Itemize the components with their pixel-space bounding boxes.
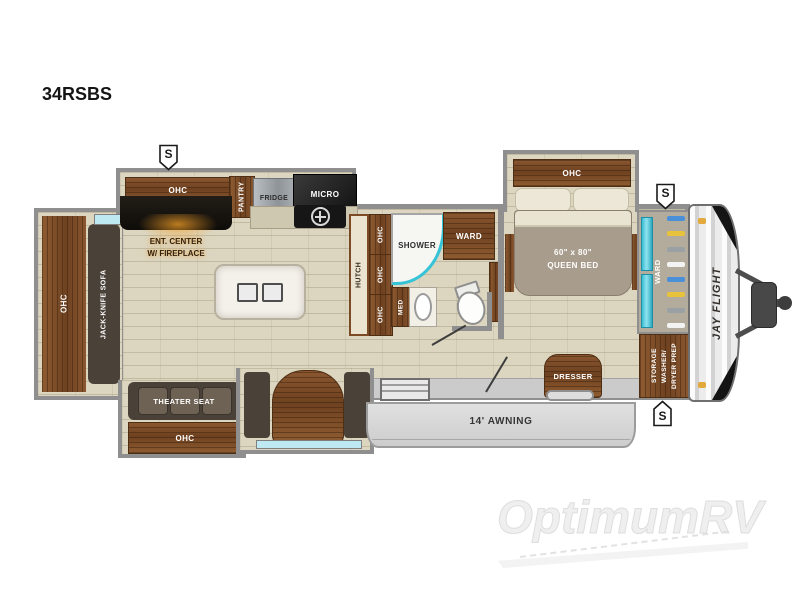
hitch-ball [778, 296, 792, 310]
theater-seat: THEATER SEAT [128, 382, 240, 420]
storage-washer-dryer-prep: STORAGE WASHER/ DRYER PREP [639, 334, 689, 398]
clothes-icon [667, 247, 685, 252]
ohc-label-1: OHC [370, 215, 392, 255]
dinette-table [272, 370, 344, 444]
front-ward-label: WARD [653, 212, 662, 332]
ohc-label-2: OHC [370, 255, 392, 295]
awning-label: 14' AWNING [368, 404, 634, 438]
propane-cover [751, 282, 777, 328]
bedroom-slideout: OHC [503, 150, 639, 212]
awning: 14' AWNING [366, 402, 636, 448]
awning-roller-line [372, 439, 630, 440]
marker-light-top [698, 218, 706, 224]
ohc-label-3: OHC [370, 295, 392, 335]
theater-seat-label: THEATER SEAT [128, 382, 240, 420]
clothes-icon [667, 323, 685, 328]
clothes-icon [667, 277, 685, 282]
queen-bed: 60" x 80" QUEEN BED [514, 210, 632, 296]
dinette-window [256, 440, 362, 449]
storage-label-1: STORAGE [651, 335, 658, 397]
sink-basin-left [237, 283, 258, 302]
theater-ohc-cabinet: OHC [128, 422, 242, 454]
brand-logo: JAY FLIGHT [706, 206, 728, 400]
dinette-bench-left [244, 372, 270, 438]
clothes-icon [667, 231, 685, 236]
clothes-icon [667, 292, 685, 297]
marker-light-bottom [698, 382, 706, 388]
speaker-badge-letter: S [658, 409, 666, 423]
clothes-icon [667, 216, 685, 221]
bath-wardrobe: WARD [443, 212, 495, 260]
cooktop [294, 205, 346, 228]
floorplan-image: 34RSBS OHC JACK-KNIFE SOFA OHC PANTRY FR… [0, 0, 800, 600]
bed-ohc-label: OHC [514, 160, 630, 186]
bed-ohc-cabinet: OHC [513, 159, 631, 187]
rear-ohc-label: OHC [42, 216, 86, 392]
nightstand-left [505, 234, 514, 292]
entry-step [380, 378, 430, 401]
queen-bed-name: QUEEN BED [547, 261, 598, 270]
speaker-badge-bedroom: S [655, 183, 676, 210]
hutch: HUTCH [349, 214, 369, 336]
clothes-icon [667, 308, 685, 313]
shower-label: SHOWER [394, 241, 440, 250]
door-threshold [546, 390, 594, 401]
bath-wall-vertical [487, 292, 492, 331]
front-cap: JAY FLIGHT [688, 204, 740, 402]
bath-ward-label: WARD [444, 213, 494, 259]
ent-center-label: ENT. CENTER W/ FIREPLACE [116, 235, 236, 259]
watermark: OptimumRV [490, 494, 770, 540]
theater-ohc-label: OHC [129, 423, 241, 453]
med-cabinet: MED [391, 287, 411, 327]
queen-bed-size: 60" x 80" [554, 248, 592, 257]
clothes-icon [667, 262, 685, 267]
hanging-clothes-icons [667, 216, 685, 328]
wardrobe-mirror-bottom [641, 274, 653, 328]
sink-basin-right [262, 283, 283, 302]
wardrobe-mirror-top [641, 217, 653, 271]
bed-blanket-fold [515, 211, 631, 227]
bedroom-wall [498, 209, 504, 339]
theater-slideout: THEATER SEAT OHC [118, 380, 246, 458]
pillow-left [515, 188, 571, 212]
ohc-cabinet-2: OHC [369, 254, 393, 296]
dinette-slideout [236, 368, 374, 454]
ohc-cabinet-3: OHC [369, 294, 393, 336]
front-wardrobe: WARD [637, 210, 690, 334]
kitchen-island [214, 264, 306, 320]
speaker-badge-letter: S [164, 147, 172, 161]
speaker-badge-letter: S [661, 186, 669, 200]
med-label: MED [392, 288, 410, 326]
queen-bed-label: 60" x 80" QUEEN BED [515, 245, 631, 271]
ent-center-label-line2: W/ FIREPLACE [147, 249, 204, 258]
watermark-text: OptimumRV [490, 494, 770, 540]
speaker-badge-kitchen: S [158, 144, 179, 171]
rear-sofa-slideout: OHC JACK-KNIFE SOFA [34, 208, 122, 400]
burner-icon [311, 207, 330, 226]
step-tread [382, 384, 428, 386]
speaker-badge-exterior: S [652, 400, 673, 427]
hutch-label: HUTCH [351, 216, 367, 334]
storage-label-2: WASHER/ [661, 335, 668, 397]
ent-center-label-line1: ENT. CENTER [150, 237, 202, 246]
pillow-right [573, 188, 629, 212]
rear-ohc-cabinet: OHC [42, 216, 86, 392]
ohc-cabinet-1: OHC [369, 214, 393, 256]
vanity [409, 287, 437, 327]
vanity-sink-icon [414, 293, 432, 321]
model-title: 34RSBS [42, 84, 112, 105]
storage-label-3: DRYER PREP [671, 335, 678, 397]
step-tread [382, 390, 428, 392]
